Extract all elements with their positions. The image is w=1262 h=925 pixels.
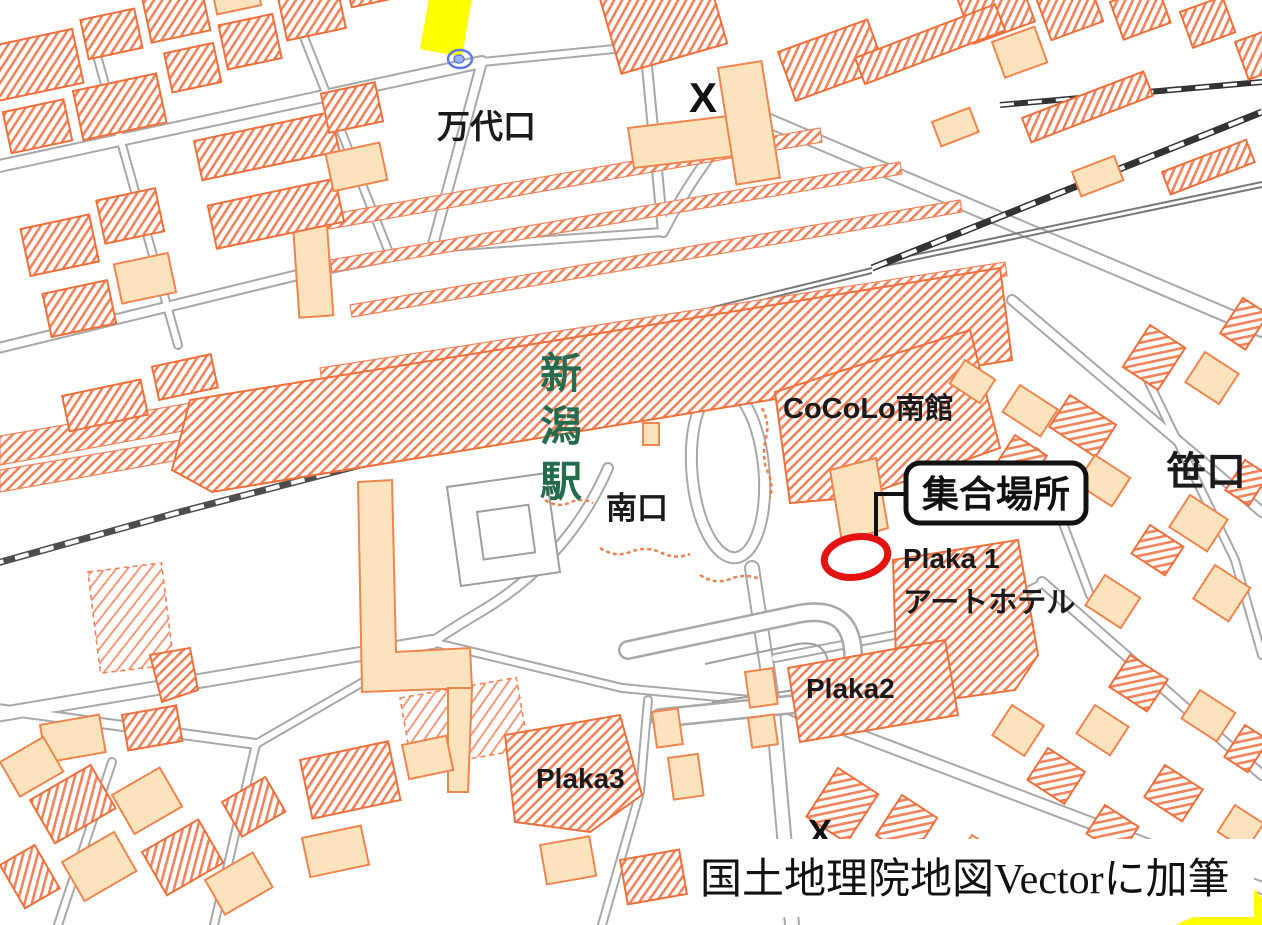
pedestrian-deck-stem bbox=[448, 688, 472, 792]
label-art-hotel: アートホテル bbox=[903, 587, 1075, 619]
meeting-point-label: 集合場所 bbox=[921, 474, 1070, 515]
label-plaka3: Plaka3 bbox=[536, 763, 625, 794]
small-kiosk bbox=[643, 423, 659, 445]
svg-text:新: 新 bbox=[540, 350, 582, 397]
label-cocolo-south: CoCoLo南館 bbox=[783, 391, 954, 425]
gsi-vector-map: 万代口 新 潟 駅 南口 CoCoLo南館 Plaka 1 アートホテル Pla… bbox=[0, 0, 1262, 925]
svg-text:潟: 潟 bbox=[540, 403, 582, 450]
label-bandai-exit: 万代口 bbox=[437, 108, 536, 145]
map-canvas: 万代口 新 潟 駅 南口 CoCoLo南館 Plaka 1 アートホテル Pla… bbox=[0, 0, 1262, 925]
crossing-x-icon-top: X bbox=[689, 74, 717, 121]
label-south-exit: 南口 bbox=[606, 491, 668, 526]
label-plaka2: Plaka2 bbox=[806, 673, 895, 704]
caption-text: 国土地理院地図Vectorに加筆 bbox=[700, 856, 1230, 903]
source-caption: 国土地理院地図Vectorに加筆 bbox=[692, 839, 1254, 917]
label-sasaguchi: 笹口 bbox=[1166, 450, 1246, 494]
label-niigata-station: 新 潟 駅 bbox=[540, 350, 582, 505]
label-plaka1: Plaka 1 bbox=[903, 543, 1000, 574]
svg-text:駅: 駅 bbox=[540, 458, 582, 505]
